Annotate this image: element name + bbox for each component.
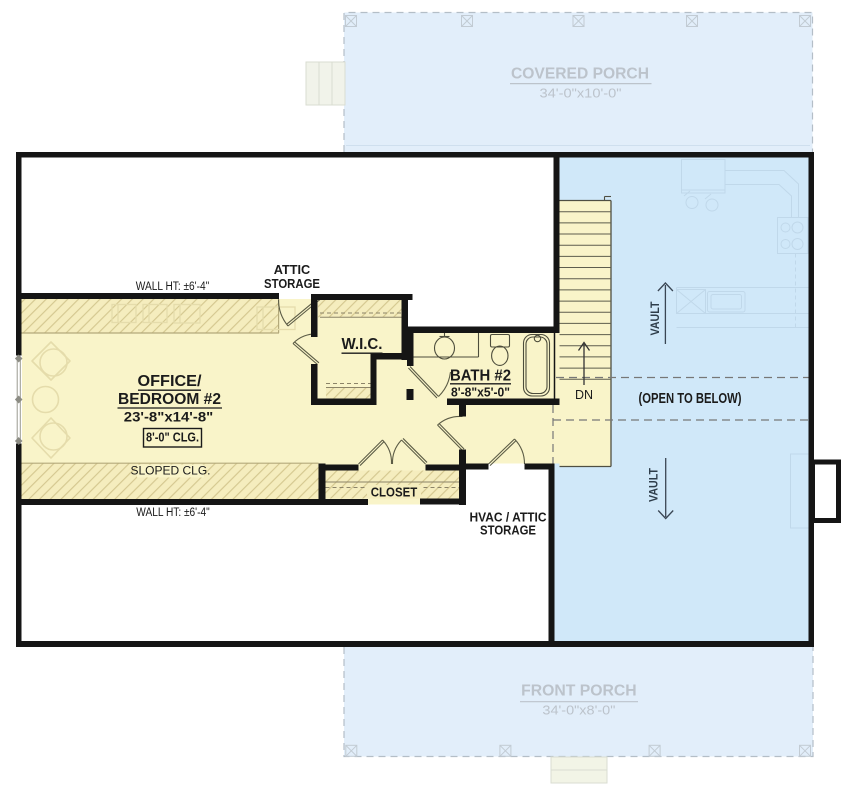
svg-text:OFFICE/: OFFICE/ xyxy=(138,373,203,390)
svg-text:STORAGE: STORAGE xyxy=(264,276,320,291)
svg-text:(OPEN TO BELOW): (OPEN TO BELOW) xyxy=(639,391,742,407)
svg-text:VAULT: VAULT xyxy=(650,302,662,336)
svg-text:SLOPED CLG.: SLOPED CLG. xyxy=(130,464,210,478)
svg-text:23'-8"x14'-8": 23'-8"x14'-8" xyxy=(124,410,214,425)
svg-text:VAULT: VAULT xyxy=(649,468,661,502)
svg-text:8'-0" CLG.: 8'-0" CLG. xyxy=(146,431,199,445)
svg-text:34'-0"x10'-0": 34'-0"x10'-0" xyxy=(540,85,622,100)
svg-text:W.I.C.: W.I.C. xyxy=(342,336,383,353)
svg-text:8'-8"x5'-0": 8'-8"x5'-0" xyxy=(451,384,510,399)
svg-text:ATTIC: ATTIC xyxy=(274,262,311,277)
svg-text:WALL HT: ±6'-4": WALL HT: ±6'-4" xyxy=(136,507,210,519)
svg-text:BEDROOM #2: BEDROOM #2 xyxy=(118,391,221,408)
svg-text:BATH #2: BATH #2 xyxy=(450,368,511,385)
svg-text:DN: DN xyxy=(575,388,593,402)
svg-text:FRONT PORCH: FRONT PORCH xyxy=(521,682,637,699)
svg-text:COVERED PORCH: COVERED PORCH xyxy=(511,66,649,83)
svg-text:WALL HT: ±6'-4": WALL HT: ±6'-4" xyxy=(136,281,210,293)
svg-text:34'-0"x8'-0": 34'-0"x8'-0" xyxy=(542,702,615,717)
svg-text:STORAGE: STORAGE xyxy=(480,523,536,538)
svg-text:CLOSET: CLOSET xyxy=(371,485,418,499)
